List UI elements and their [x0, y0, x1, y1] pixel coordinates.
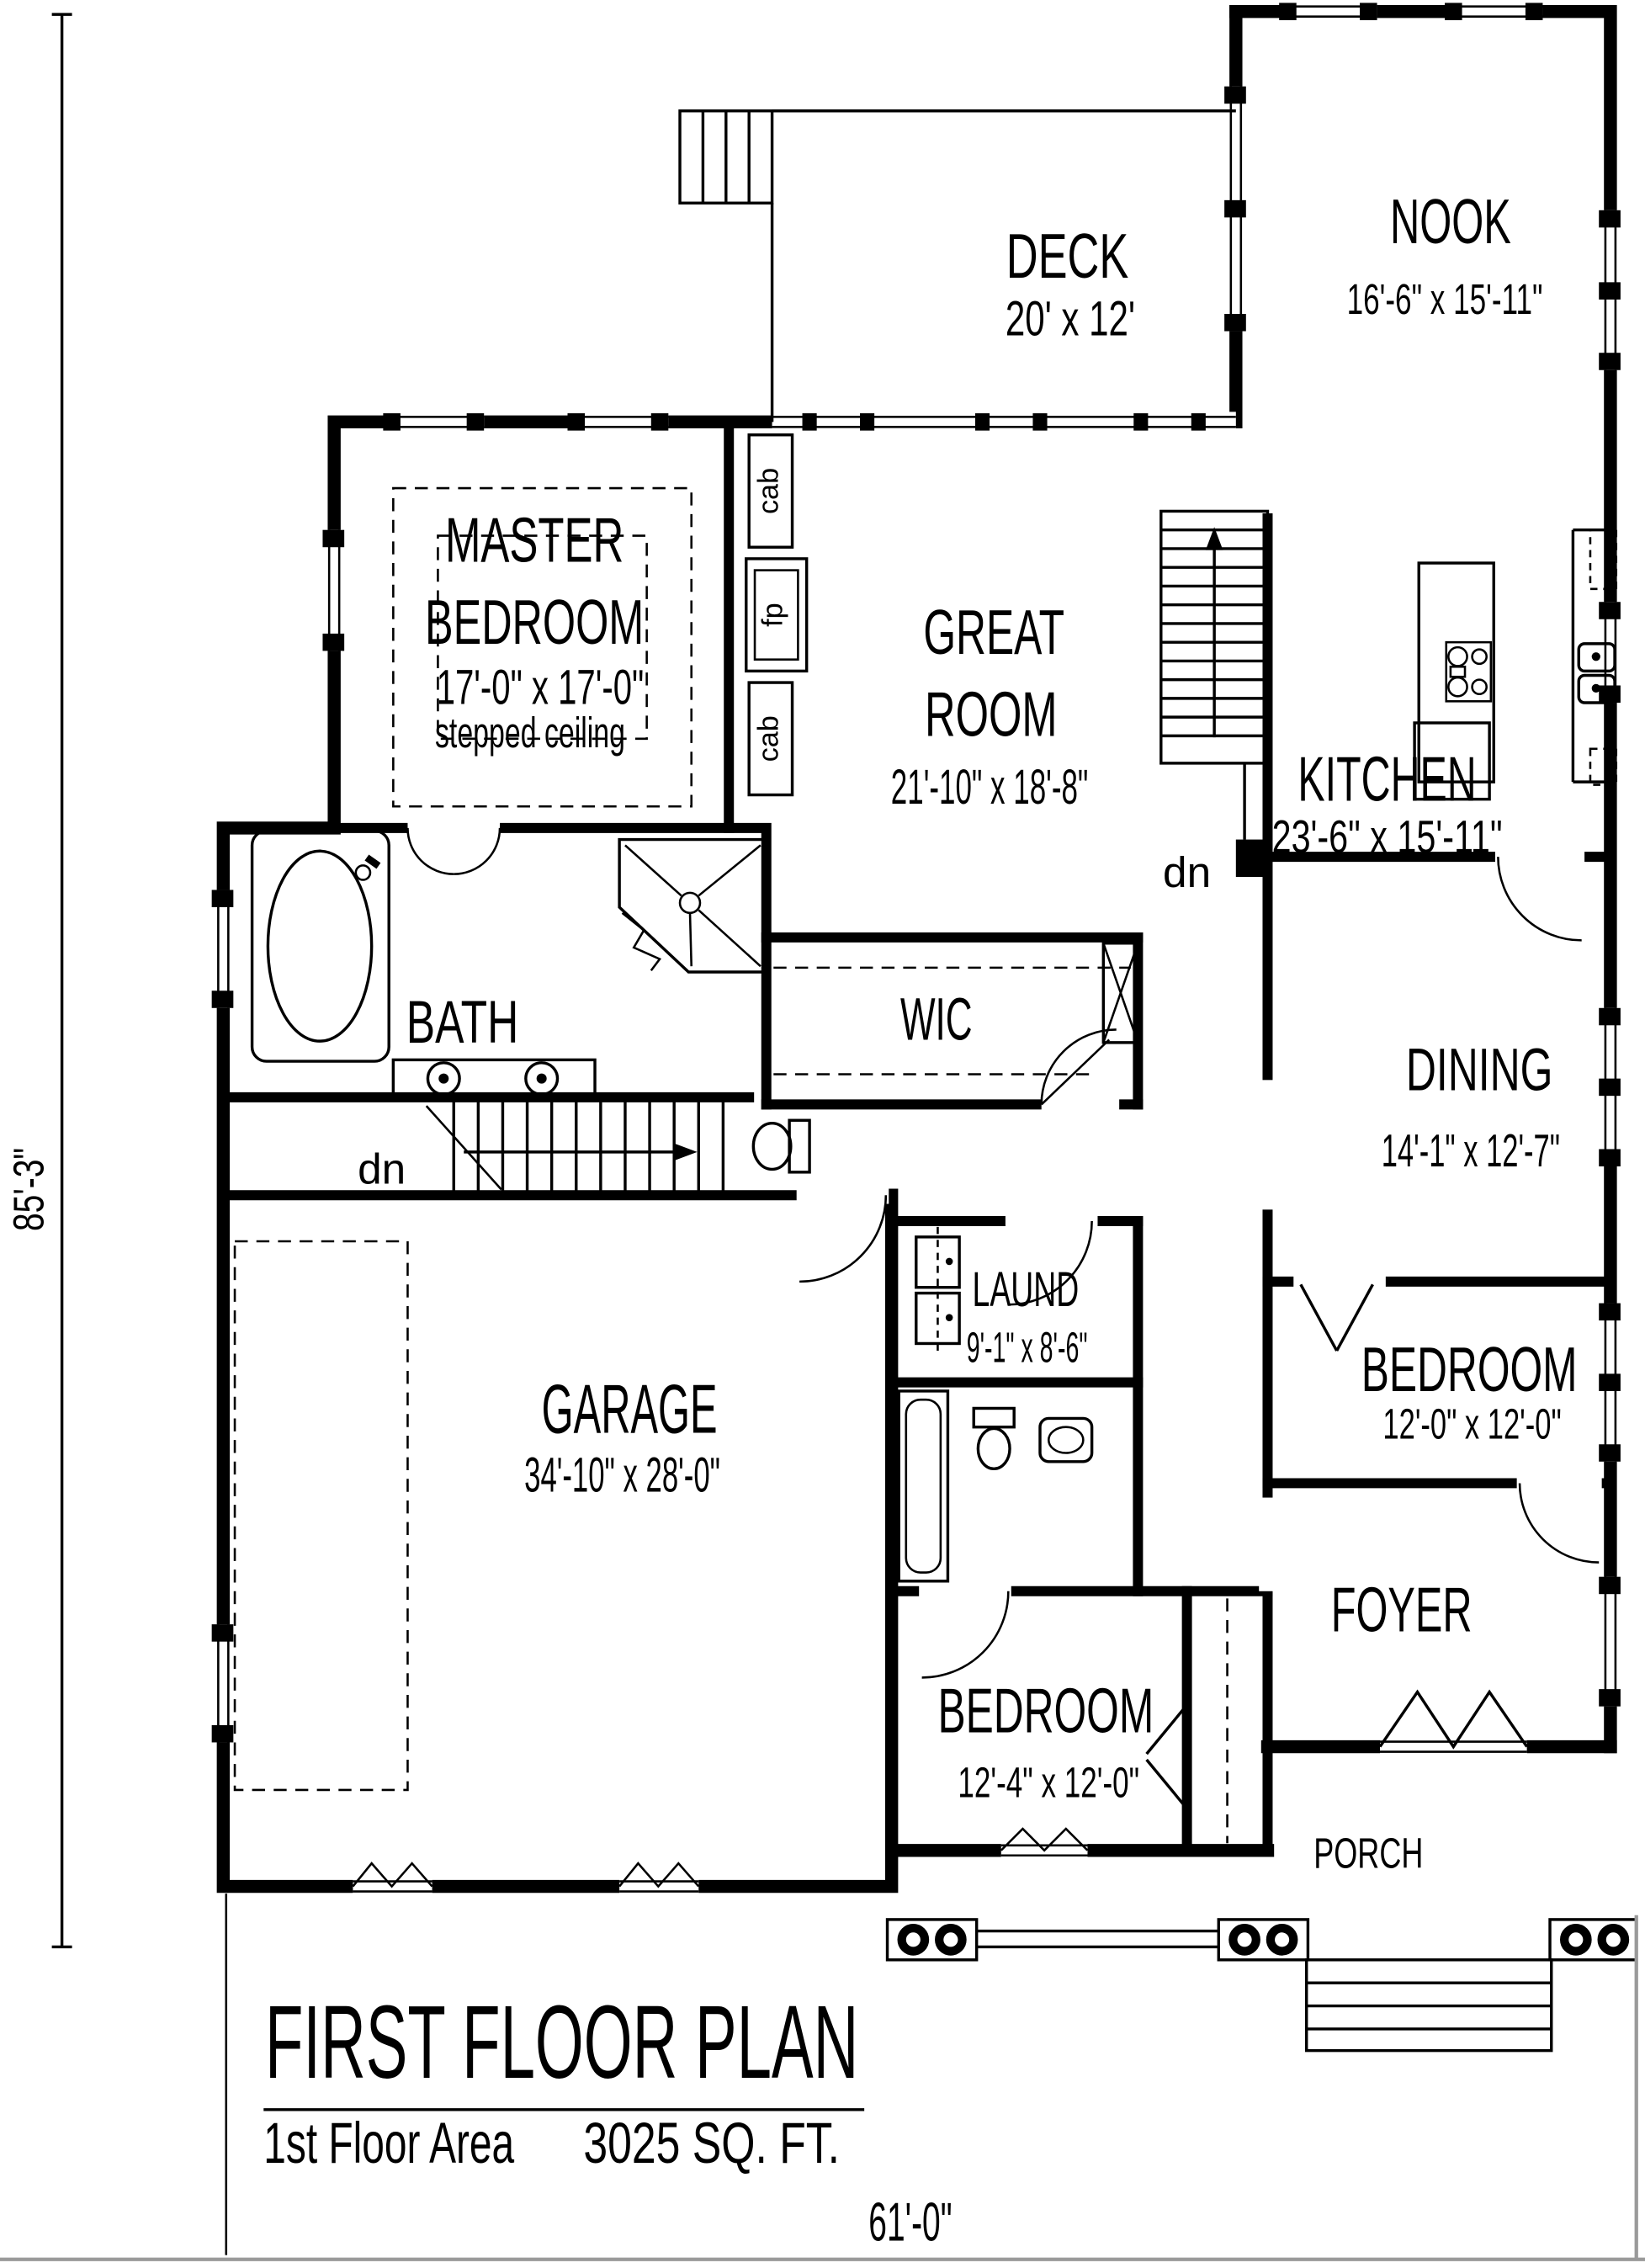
basement-stairs: dn — [358, 1097, 723, 1195]
closet-door — [1301, 1284, 1337, 1351]
master-bedroom-label-2: BEDROOM — [425, 587, 644, 657]
bedroom-right-dims: 12'-0" x 12'-0" — [1382, 1400, 1561, 1447]
stairs-up-icon — [1161, 511, 1268, 877]
master-bedroom-dims: 17'-0" x 17'-0" — [437, 661, 645, 715]
bedroom-front: BEDROOM 12'-4" x 12'-0" — [922, 1591, 1228, 1843]
toilet-icon — [974, 1408, 1014, 1469]
great-room-label-2: ROOM — [925, 678, 1057, 749]
door-arc — [1520, 1483, 1599, 1562]
area-label: 1st Floor Area — [263, 2111, 515, 2175]
dining-dims: 14'-1" x 12'-7" — [1382, 1124, 1560, 1176]
floor-plan-drawing: DECK 20' x 12' NOOK 16'-6" x 15'-11" MAS… — [0, 0, 1645, 2268]
walk-in-closet: WIC — [773, 943, 1138, 1105]
kitchen-label: KITCHEN — [1297, 743, 1476, 814]
laundry-dims: 9'-1" x 8'-6" — [967, 1324, 1088, 1372]
master-bath: BATH — [252, 831, 810, 1172]
nook-label: NOOK — [1390, 186, 1511, 257]
door-arc — [922, 1591, 1009, 1678]
stairs-down-icon — [427, 1097, 724, 1195]
master-bedroom-note: stepped ceiling — [435, 709, 625, 757]
title-block: FIRST FLOOR PLAN 1st Floor Area 3025 SQ.… — [263, 1984, 864, 2175]
vanity-sinks-icon — [393, 1060, 595, 1097]
deck-label: DECK — [1006, 220, 1129, 291]
foyer-label: FOYER — [1331, 1575, 1473, 1645]
wic-label: WIC — [900, 985, 973, 1053]
great-room: GREAT ROOM 21'-10" x 18'-8" dn — [891, 511, 1268, 896]
dining-label: DINING — [1406, 1036, 1553, 1103]
foyer: FOYER — [1331, 1575, 1527, 1757]
great-room-label-1: GREAT — [923, 597, 1064, 667]
toilet-icon — [753, 1120, 809, 1172]
garage-dims: 34'-10" x 28'-0" — [524, 1448, 720, 1503]
cab-bottom-label: cab — [752, 715, 784, 762]
garage-storage-dashed — [235, 1241, 407, 1790]
porch-label: PORCH — [1313, 1829, 1423, 1877]
bedroom-right-label: BEDROOM — [1361, 1334, 1578, 1405]
bathtub-icon — [899, 1391, 947, 1581]
height-dimension: 85'-3" — [4, 1148, 52, 1231]
deck: DECK 20' x 12' — [680, 111, 1236, 422]
door-arc — [799, 1195, 886, 1282]
master-bedroom: MASTER BEDROOM 17'-0" x 17'-0" stepped c… — [393, 435, 806, 874]
porch-column-icon — [1218, 1920, 1308, 1960]
door-arc — [1498, 857, 1581, 940]
bathtub-icon — [252, 831, 390, 1061]
bath-label: BATH — [406, 989, 519, 1056]
hall-bath — [899, 1391, 1091, 1581]
plan-title: FIRST FLOOR PLAN — [265, 1984, 858, 2101]
master-bedroom-label-1: MASTER — [445, 504, 624, 575]
floor-plan-sheet: DECK 20' x 12' NOOK 16'-6" x 15'-11" MAS… — [0, 0, 1645, 2268]
kitchen: KITCHEN 23'-6" x 15'-11" — [1272, 530, 1616, 863]
area-value: 3025 SQ. FT. — [583, 2111, 840, 2175]
laundry: LAUND 9'-1" x 8'-6" — [916, 1221, 1092, 1372]
great-room-dims: 21'-10" x 18'-8" — [891, 760, 1089, 815]
bedroom-right: BEDROOM 12'-0" x 12'-0" — [1301, 1284, 1599, 1562]
cab-top-label: cab — [752, 468, 784, 514]
laundry-label: LAUND — [973, 1262, 1080, 1317]
bedroom-front-dims: 12'-4" x 12'-0" — [958, 1758, 1139, 1806]
washer-dryer-icon — [916, 1227, 959, 1354]
kitchen-dims: 23'-6" x 15'-11" — [1272, 810, 1503, 863]
porch-column-icon — [1550, 1920, 1637, 1960]
shower-icon — [619, 840, 767, 972]
width-dimension: 61'-0" — [868, 2191, 952, 2253]
nook-dims: 16'-6" x 15'-11" — [1347, 275, 1543, 323]
porch-steps-icon — [1307, 1960, 1552, 2051]
porch: PORCH — [888, 1829, 1637, 2050]
bedroom-front-label: BEDROOM — [937, 1675, 1154, 1745]
nook: NOOK 16'-6" x 15'-11" — [1347, 186, 1543, 323]
stairs-dn-label: dn — [358, 1145, 406, 1193]
sink-icon — [1040, 1418, 1092, 1461]
garage: GARAGE 34'-10" x 28'-0" — [235, 1195, 886, 1790]
porch-column-icon — [888, 1920, 977, 1960]
stairs-dn-label: dn — [1163, 848, 1211, 896]
cooktop-icon — [1446, 642, 1491, 701]
linen-closet-icon — [1103, 943, 1138, 1043]
deck-dims: 20' x 12' — [1006, 292, 1135, 347]
garage-label: GARAGE — [542, 1372, 718, 1448]
dining: DINING 14'-1" x 12'-7" — [1382, 857, 1582, 1176]
fp-label: fp — [757, 603, 789, 627]
closet-door — [1147, 1760, 1187, 1809]
